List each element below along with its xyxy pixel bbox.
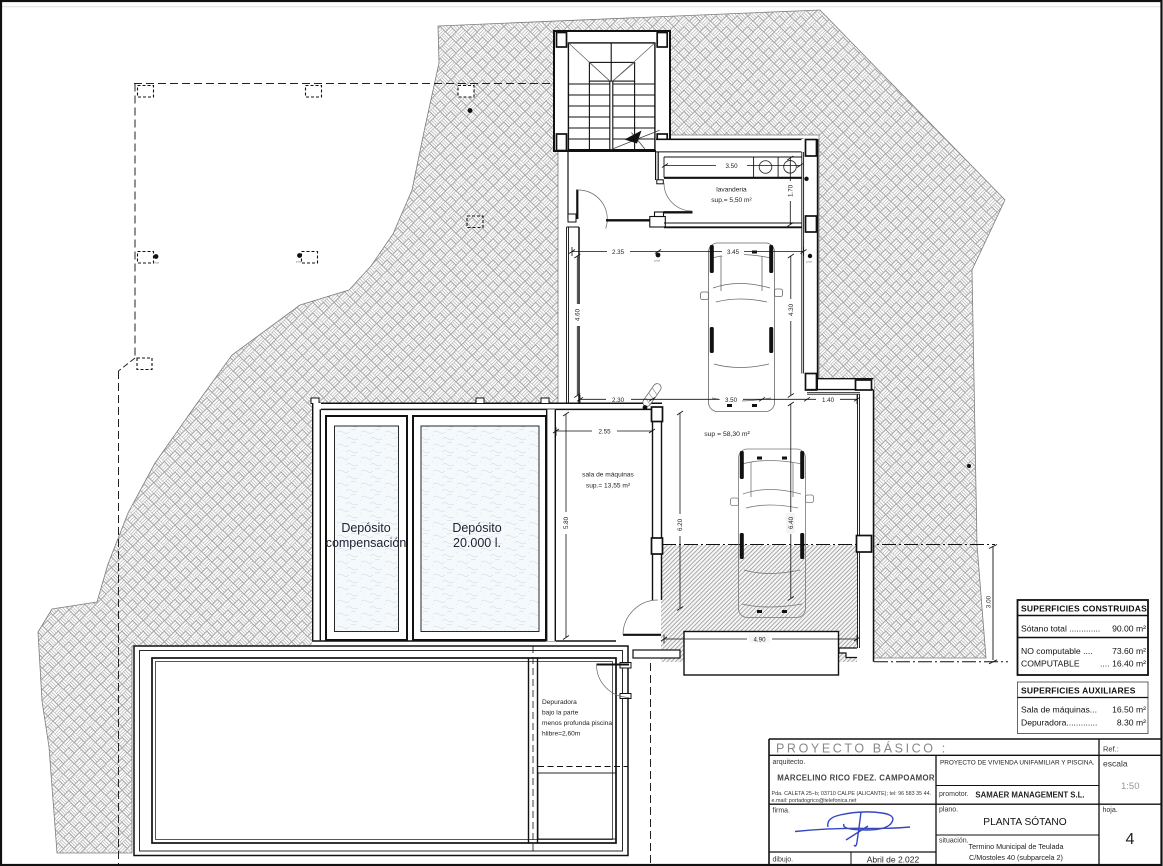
svg-text:Abril de 2.022: Abril de 2.022: [867, 855, 920, 865]
svg-text:hoja.: hoja.: [1103, 807, 1118, 814]
svg-text:1:50: 1:50: [1121, 781, 1140, 792]
svg-text:promotor.: promotor.: [939, 791, 969, 798]
svg-text:2.55: 2.55: [598, 429, 611, 436]
svg-text:....: ....: [1100, 659, 1110, 669]
svg-text:6.40: 6.40: [788, 516, 795, 529]
svg-text:COMPUTABLE: COMPUTABLE: [1021, 659, 1080, 669]
svg-text:MARCELINO RICO FDEZ. CAMPOAMOR: MARCELINO RICO FDEZ. CAMPOAMOR: [777, 774, 935, 783]
svg-text:p.luz: p.luz: [806, 260, 813, 264]
svg-text:e.mail: portadogrico@telefonic: e.mail: portadogrico@telefonica.net: [772, 798, 857, 804]
svg-text:hlibre=2,60m: hlibre=2,60m: [542, 731, 581, 738]
svg-text:sup.= 13,55 m²: sup.= 13,55 m²: [586, 483, 631, 490]
svg-text:PLANTA SÓTANO: PLANTA SÓTANO: [983, 815, 1066, 828]
svg-text:arquitecto.: arquitecto.: [773, 759, 806, 766]
svg-text:73.60 m²: 73.60 m²: [1112, 646, 1146, 656]
svg-text:4.60: 4.60: [575, 308, 582, 321]
svg-text:sup.= 5,50 m²: sup.= 5,50 m²: [711, 197, 752, 204]
svg-text:sup = 58,30 m²: sup = 58,30 m²: [704, 431, 750, 438]
svg-text:4.30: 4.30: [788, 303, 795, 316]
svg-text:PROYECTO DE VIVIENDA UNIFAM: PROYECTO DE VIVIENDA UNIFAMILIAR Y PISCI…: [940, 760, 1095, 767]
svg-text:1.70: 1.70: [788, 184, 795, 197]
svg-text:C/Mostoles 40 (subparcela 2): C/Mostoles 40 (subparcela 2): [969, 853, 1063, 862]
svg-text:20.000 l.: 20.000 l.: [453, 536, 501, 550]
svg-text:4.90: 4.90: [753, 637, 766, 644]
svg-text:8.30 m²: 8.30 m²: [1117, 718, 1146, 728]
svg-text:4: 4: [1126, 831, 1135, 848]
svg-text:3.00: 3.00: [986, 595, 993, 608]
svg-text:6.20: 6.20: [677, 518, 684, 531]
svg-text:2.35: 2.35: [612, 249, 625, 256]
svg-text:situación.: situación.: [939, 838, 969, 845]
svg-text:Sala de máquinas...: Sala de máquinas...: [1021, 705, 1097, 715]
svg-text:3.45: 3.45: [727, 249, 740, 256]
svg-text:firma.: firma.: [773, 808, 791, 815]
svg-text:1.40: 1.40: [822, 397, 835, 404]
svg-text:dibujo.: dibujo.: [773, 857, 794, 864]
svg-text:p.luz: p.luz: [296, 260, 303, 264]
svg-text:NO computable ....: NO computable ....: [1021, 646, 1093, 656]
svg-text:Ref.:: Ref.:: [1103, 745, 1119, 754]
svg-text:5.80: 5.80: [563, 516, 570, 529]
svg-text:compensación: compensación: [326, 536, 407, 550]
svg-text:SUPERFICIES AUXILIARES: SUPERFICIES AUXILIARES: [1021, 686, 1136, 696]
svg-text:16.40 m²: 16.40 m²: [1112, 659, 1146, 669]
svg-text:plano.: plano.: [939, 807, 958, 814]
svg-text:3.50: 3.50: [725, 163, 738, 170]
svg-text:90.00 m²: 90.00 m²: [1112, 624, 1146, 634]
svg-text:p.luz: p.luz: [654, 259, 661, 263]
svg-text:SAMAER MANAGEMENT S.L.: SAMAER MANAGEMENT S.L.: [975, 791, 1084, 800]
svg-text:menos profunda piscina: menos profunda piscina: [542, 720, 612, 727]
svg-text:3.50: 3.50: [725, 397, 738, 404]
svg-text:2.30: 2.30: [612, 397, 625, 404]
svg-text:PROYECTO BÁSICO :: PROYECTO BÁSICO :: [776, 741, 948, 756]
svg-text:Depuradora: Depuradora: [542, 699, 577, 706]
svg-text:Sótano total .............: Sótano total .............: [1021, 624, 1100, 634]
svg-text:16.50 m²: 16.50 m²: [1112, 705, 1146, 715]
svg-text:Depuradora.............: Depuradora.............: [1021, 718, 1097, 728]
svg-text:bajo la parte: bajo la parte: [542, 710, 579, 717]
svg-text:Termino Municipal de Teulada: Termino Municipal de Teulada: [969, 842, 1064, 851]
svg-text:p.luz: p.luz: [153, 261, 160, 265]
svg-text:Depósito: Depósito: [452, 521, 501, 535]
svg-text:lavanderia: lavanderia: [716, 187, 747, 194]
svg-text:Depósito: Depósito: [341, 521, 390, 535]
svg-text:escala: escala: [1103, 759, 1128, 769]
svg-text:sala de máquinas: sala de máquinas: [582, 472, 634, 479]
svg-text:Pda. CALETA 25–b; 03710 CALPE: Pda. CALETA 25–b; 03710 CALPE (ALICANTE)…: [772, 791, 932, 797]
svg-text:SUPERFICIES CONSTRUIDAS: SUPERFICIES CONSTRUIDAS: [1021, 604, 1147, 614]
